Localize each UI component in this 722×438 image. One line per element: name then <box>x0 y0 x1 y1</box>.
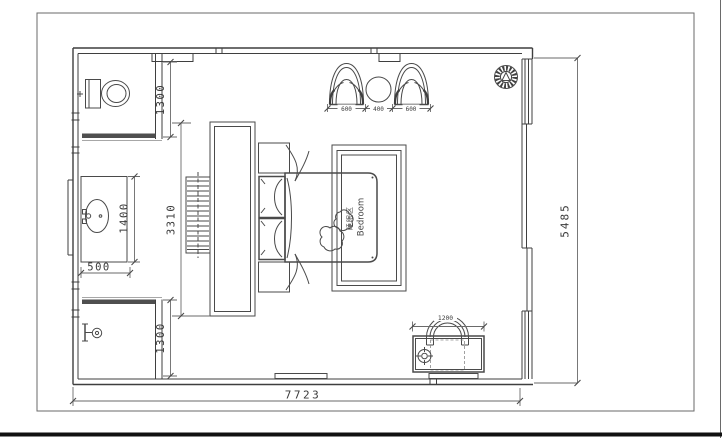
dimension-shower-room: 1300 <box>155 297 177 379</box>
potted-plant-symbol <box>495 66 518 89</box>
floor-plan-drawing: 睡眠区 Bedroom 600 400 600 <box>0 0 722 438</box>
dim-room-width: 7723 <box>285 389 322 402</box>
threshold <box>429 374 478 379</box>
corner-mark <box>372 177 374 179</box>
dim-tv-wall-length: 3310 <box>166 204 178 235</box>
dim-armchair-right: 600 <box>406 106 417 113</box>
armchair-left-symbol <box>330 64 364 105</box>
radiator-symbol <box>186 172 210 258</box>
tv-cabinet <box>210 122 255 316</box>
toilet-room <box>77 54 162 141</box>
seating-dimensions: 600 400 600 <box>325 104 434 113</box>
desk-area: 1200 <box>410 313 488 379</box>
dimension-tv-wall: 3310 <box>166 120 211 319</box>
dim-shower-room-depth: 1300 <box>155 322 167 353</box>
dim-toilet-room-depth: 1300 <box>155 84 167 115</box>
walls <box>68 48 533 385</box>
bed-zone-label-en: Bedroom <box>357 198 367 236</box>
dim-vanity-length: 1400 <box>119 202 131 233</box>
shower-room <box>82 298 162 380</box>
side-table-symbol <box>366 77 391 102</box>
rug-outline <box>332 145 406 291</box>
dim-side-table: 400 <box>373 106 384 113</box>
double-bed-symbol: 睡眠区 Bedroom <box>259 143 378 292</box>
desk-chair-symbol <box>427 316 469 370</box>
nightstand-bottom <box>259 262 290 292</box>
dim-armchair-left: 600 <box>341 106 352 113</box>
dim-room-depth: 5485 <box>559 203 572 238</box>
toilet-symbol <box>77 80 130 109</box>
wash-basin-symbol <box>83 200 109 233</box>
dimension-toilet-room: 1300 <box>155 59 177 140</box>
bed-zone-label-cn: 睡眠区 <box>346 206 354 230</box>
nightstand-top <box>259 143 290 173</box>
desk-symbol <box>413 336 484 372</box>
shower-symbol <box>82 324 102 341</box>
dimension-room-width: 7723 <box>70 387 523 406</box>
pillows <box>259 177 285 260</box>
floor-plan-canvas: 睡眠区 Bedroom 600 400 600 <box>0 0 722 438</box>
threshold <box>275 374 327 379</box>
armchair-right-symbol <box>395 64 429 105</box>
dimension-room-depth: 5485 <box>534 55 581 386</box>
dim-vanity-width: 500 <box>87 262 110 274</box>
corner-mark <box>372 257 374 259</box>
desk-dimension: 1200 <box>410 313 488 332</box>
dim-desk-width: 1200 <box>438 315 453 322</box>
